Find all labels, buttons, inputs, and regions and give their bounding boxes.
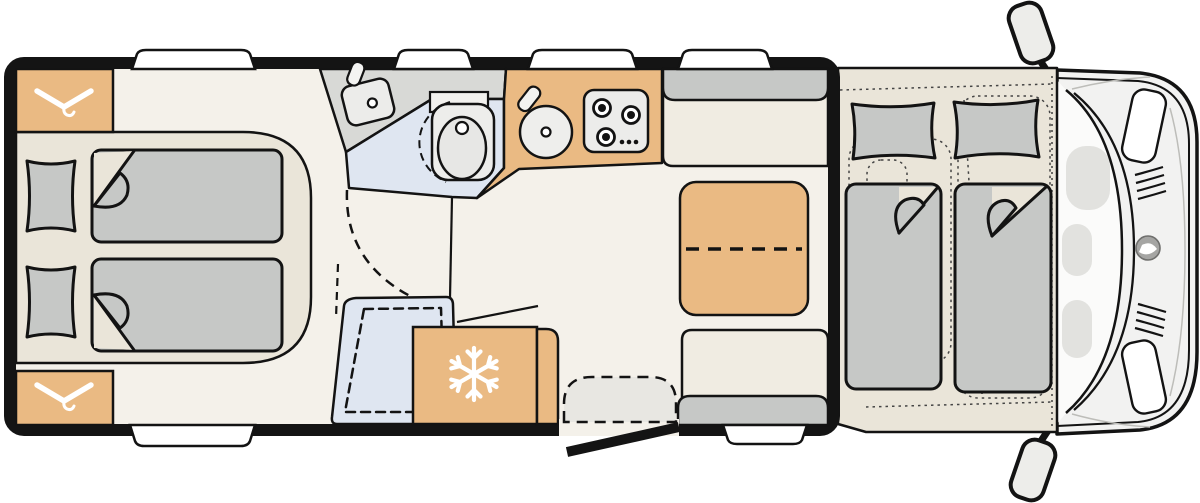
window-top-3 [528, 50, 637, 69]
bench-backrest-top [663, 69, 828, 100]
dashboard-shape [1066, 146, 1110, 210]
wardrobe-top [16, 69, 113, 132]
side-mirror-top [1005, 0, 1057, 74]
window-top-1 [132, 50, 255, 69]
pillow [852, 103, 935, 159]
window-top-4 [678, 50, 772, 69]
brand-logo-icon [1136, 236, 1160, 260]
toilet [432, 104, 494, 180]
counter-end [537, 329, 558, 424]
dashboard-shape [1062, 224, 1092, 276]
pillow [27, 267, 75, 337]
dinette-table [680, 182, 808, 315]
motorhome-floor-plan [0, 0, 1200, 503]
dashboard-shape [1062, 300, 1092, 358]
entry [559, 377, 679, 452]
gas-hob [584, 90, 648, 152]
hob-knobs [620, 140, 639, 145]
floor-plan-canvas [0, 0, 1200, 503]
side-mirror-bottom [1007, 429, 1059, 503]
entry-step [564, 377, 676, 422]
pillow [954, 100, 1039, 158]
pillow [27, 161, 75, 231]
duvet-front-right [955, 184, 1051, 392]
mirror-glass [1007, 436, 1059, 503]
duvet-front-left [846, 184, 941, 389]
dinette [663, 69, 828, 425]
mirror-glass [1005, 0, 1057, 67]
bench-backrest-bottom [678, 396, 828, 425]
window-bottom-2 [723, 425, 807, 444]
window-top-2 [394, 50, 473, 69]
duvet-left-upper [92, 150, 282, 242]
window-bottom-1 [130, 425, 255, 446]
duvet-left-lower [92, 259, 282, 351]
